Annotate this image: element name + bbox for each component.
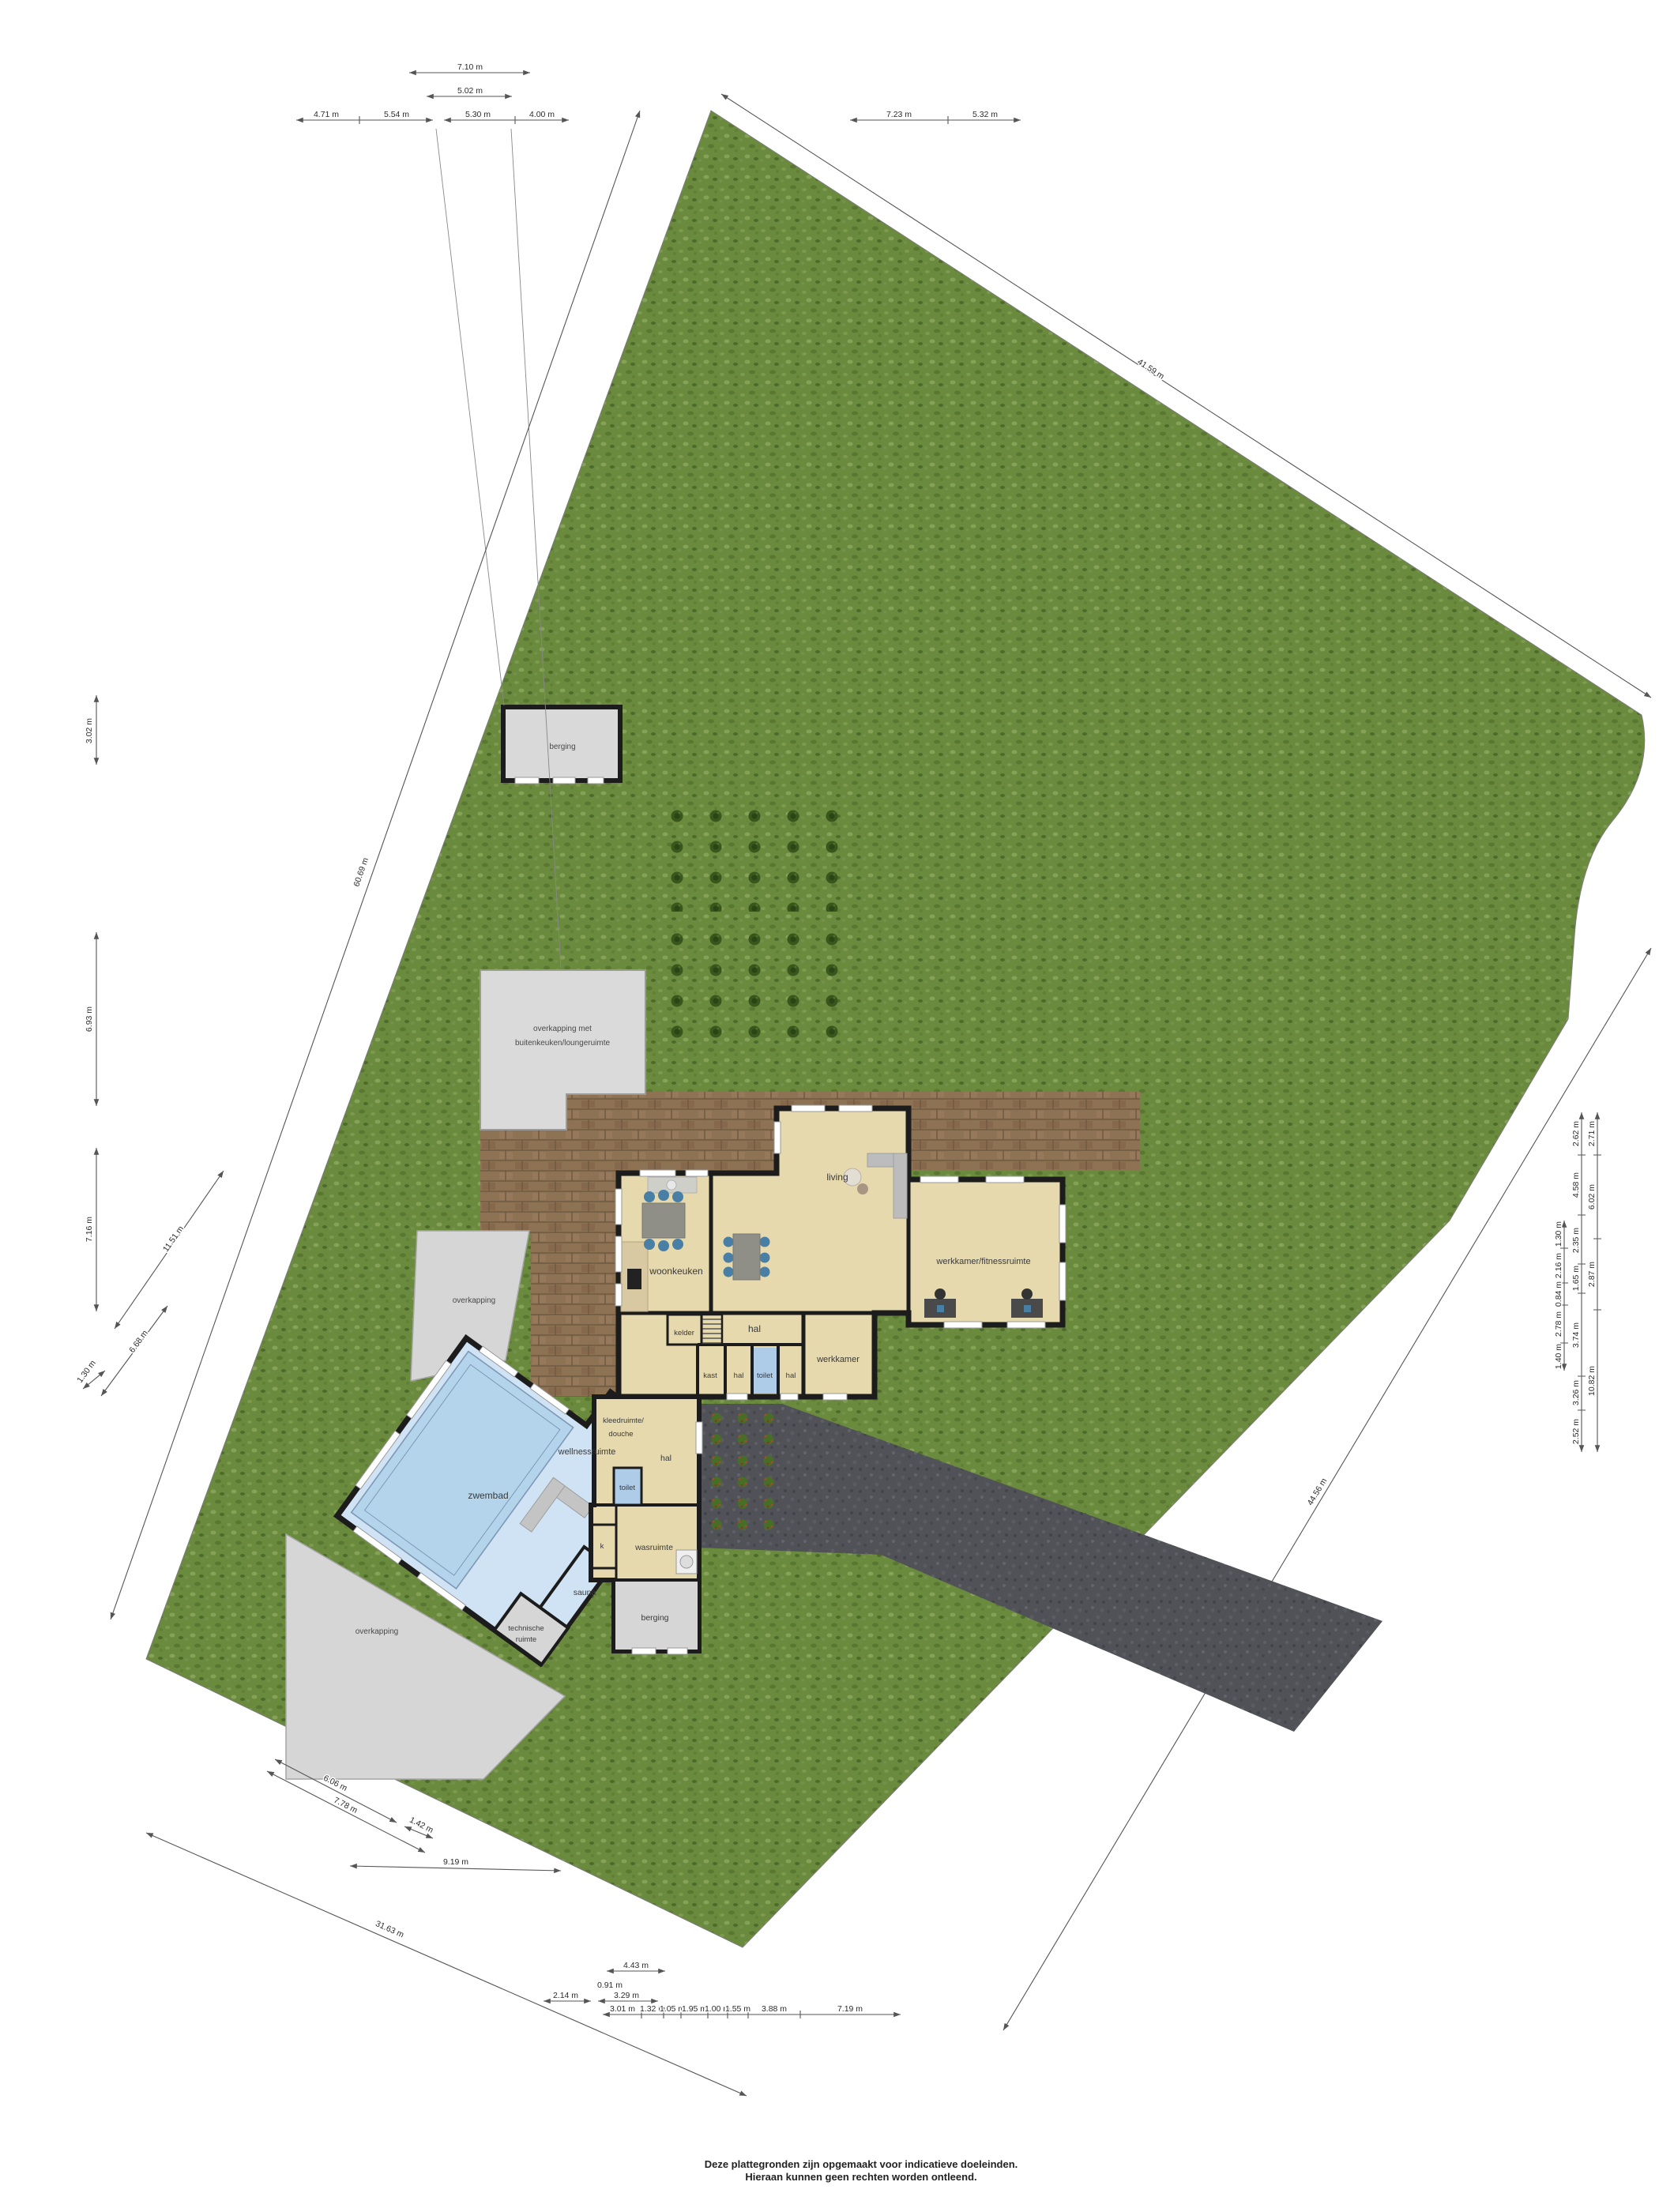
dim-top-1: 5.02 m: [457, 86, 483, 96]
label-hal-small-2: hal: [786, 1371, 796, 1380]
dim-rmid-6: 2.52 m: [1571, 1419, 1581, 1444]
orchard-grid-upper: [646, 792, 839, 912]
dim-rin-0: 1.30 m: [1554, 1221, 1563, 1247]
label-technische-2: ruimte: [516, 1635, 536, 1644]
label-overkapping-bottom: overkapping: [355, 1627, 398, 1636]
label-woonkeuken: woonkeuken: [649, 1266, 702, 1277]
dim-leftdiag-1: 6.68 m: [127, 1329, 150, 1355]
dim-top-0: 7.10 m: [457, 62, 483, 72]
dim-chain-3: 4.00 m: [529, 110, 555, 119]
dim-rmid-2: 2.35 m: [1571, 1228, 1581, 1253]
dim-chain-0: 4.71 m: [314, 110, 339, 119]
dim-rin-3: 2.78 m: [1554, 1311, 1563, 1337]
dim-bsm-0: 4.43 m: [623, 1961, 649, 1970]
label-toilet-main: toilet: [757, 1371, 773, 1380]
dim-bsm-1: 0.91 m: [597, 1981, 623, 1990]
label-hal-main: hal: [748, 1323, 761, 1334]
dim-chain-1: 5.54 m: [384, 110, 409, 119]
dim-bl-2: 1.42 m: [408, 1815, 434, 1835]
dim-left-0: 3.02 m: [85, 718, 94, 743]
label-berging-top: berging: [549, 743, 575, 751]
dim-left-1: 6.93 m: [85, 1006, 94, 1032]
dim-chain-4: 7.23 m: [886, 110, 912, 119]
label-zwembad: zwembad: [468, 1490, 508, 1501]
dim-topright: 41.59 m: [1135, 357, 1166, 382]
label-kleedruimte-2: douche: [608, 1430, 633, 1439]
dim-rmid-0: 2.62 m: [1571, 1121, 1581, 1146]
label-overkapping-buitenkeuken-1: overkapping met: [533, 1025, 592, 1033]
label-kast: kast: [703, 1371, 717, 1380]
label-kelder: kelder: [674, 1329, 694, 1337]
label-hal-pool: hal: [660, 1454, 671, 1463]
dim-bch-6: 3.88 m: [762, 2004, 787, 2014]
label-living: living: [826, 1172, 848, 1183]
label-wellnessruimte: wellnessruimte: [558, 1447, 616, 1457]
label-kleedruimte-1: kleedruimte/: [603, 1416, 644, 1425]
label-sauna: sauna: [574, 1588, 596, 1597]
label-wasruimte: wasruimte: [634, 1543, 673, 1552]
dim-bl-3: 9.19 m: [443, 1857, 468, 1867]
label-kast-k: k: [600, 1542, 604, 1551]
label-overkapping-left: overkapping: [453, 1296, 495, 1305]
dim-chain-2: 5.30 m: [465, 110, 491, 119]
dim-bsm-3: 3.29 m: [614, 1991, 639, 2000]
dim-leftdiag-0: 11.51 m: [161, 1224, 186, 1254]
dim-rmid-3: 1.65 m: [1571, 1266, 1581, 1291]
dim-rin-1: 2.16 m: [1554, 1253, 1563, 1278]
dim-bsm-2: 2.14 m: [553, 1991, 578, 2000]
dim-rin-2: 0.84 m: [1554, 1281, 1563, 1307]
label-werkkamer-fitnessruimte: werkkamer/fitnessruimte: [935, 1257, 1030, 1266]
floorplan-page: 7.10 m 5.02 m 4.71 m 5.54 m 5.30 m 4.00 …: [0, 0, 1659, 2212]
orchard-grid-lower: [656, 923, 850, 1052]
dim-bl-4: 31.63 m: [374, 1919, 405, 1939]
dim-rout-0: 2.71 m: [1587, 1121, 1597, 1146]
disclaimer-line-1: Deze plattegronden zijn opgemaakt voor i…: [705, 2158, 1018, 2170]
dim-rout-1: 6.02 m: [1587, 1184, 1597, 1209]
label-werkkamer: werkkamer: [816, 1355, 860, 1364]
dim-left-2: 7.16 m: [85, 1217, 94, 1242]
label-overkapping-buitenkeuken-2: buitenkeuken/loungeruimte: [515, 1039, 611, 1048]
dim-rmid-4: 3.74 m: [1571, 1322, 1581, 1348]
dim-chain-5: 5.32 m: [972, 110, 998, 119]
dim-bch-3: 1.95 m: [682, 2004, 707, 2014]
dim-leftdiag-2: 1.30 m: [75, 1359, 98, 1385]
label-technische-1: technische: [508, 1624, 544, 1633]
dim-rmid-1: 4.58 m: [1571, 1172, 1581, 1198]
dim-leftdiag-3: 60.69 m: [352, 856, 371, 888]
dim-bch-0: 3.01 m: [610, 2004, 635, 2014]
label-berging-pool: berging: [641, 1613, 668, 1623]
dim-bch-7: 7.19 m: [837, 2004, 863, 2014]
label-toilet-pool: toilet: [619, 1484, 635, 1492]
site-plan-canvas: 7.10 m 5.02 m 4.71 m 5.54 m 5.30 m 4.00 …: [0, 0, 1659, 2212]
dim-bch-5: 1.55 m: [725, 2004, 750, 2014]
dim-rout-3: 10.82 m: [1587, 1366, 1597, 1396]
dim-rmid-5: 3.26 m: [1571, 1380, 1581, 1405]
dim-bl-1: 7.78 m: [332, 1796, 359, 1815]
label-hal-small-1: hal: [734, 1371, 744, 1380]
dim-rin-4: 1.40 m: [1554, 1344, 1563, 1369]
dim-rout-2: 2.87 m: [1587, 1262, 1597, 1287]
disclaimer-line-2: Hieraan kunnen geen rechten worden ontle…: [745, 2171, 976, 2183]
